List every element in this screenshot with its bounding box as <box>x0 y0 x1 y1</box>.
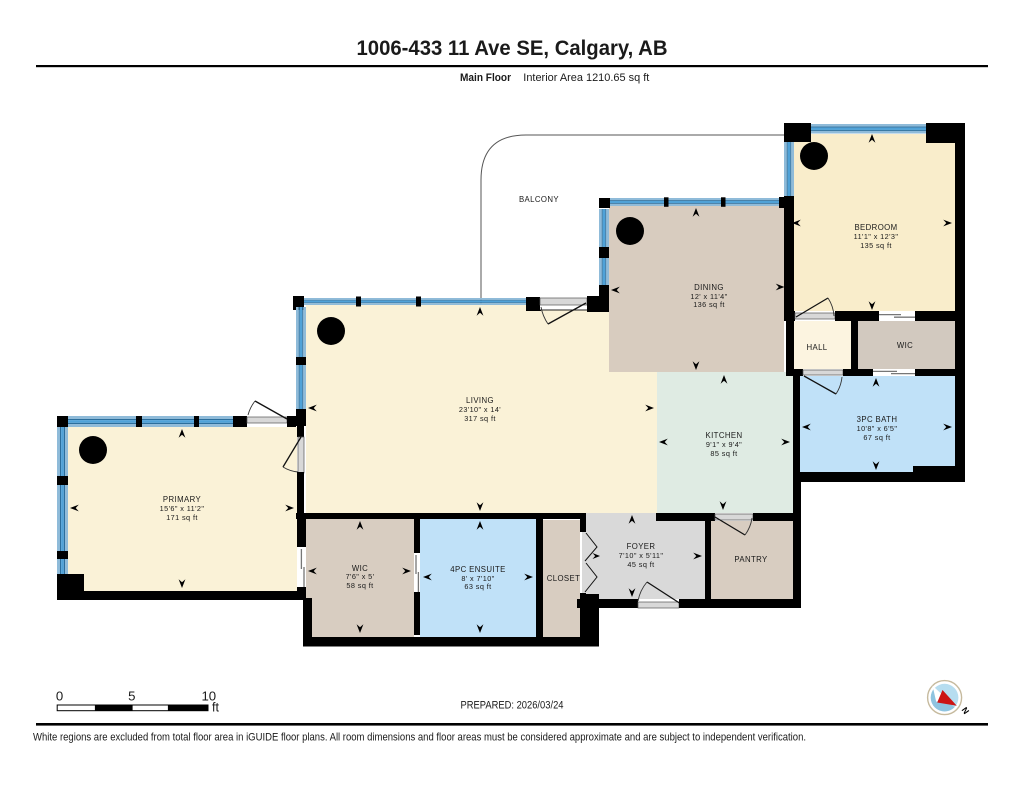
svg-text:15'6" x 11'2": 15'6" x 11'2" <box>160 504 205 513</box>
svg-text:7'10" x 5'11": 7'10" x 5'11" <box>619 551 664 560</box>
svg-text:KITCHEN: KITCHEN <box>705 431 742 440</box>
svg-text:Main Floor: Main Floor <box>460 72 511 84</box>
svg-text:0: 0 <box>56 689 63 704</box>
svg-text:136 sq ft: 136 sq ft <box>693 300 725 309</box>
svg-text:11'1" x 12'3": 11'1" x 12'3" <box>854 232 899 241</box>
svg-text:317 sq ft: 317 sq ft <box>464 414 496 423</box>
svg-text:Interior Area 1210.65 sq ft: Interior Area 1210.65 sq ft <box>523 72 649 84</box>
svg-text:ft: ft <box>212 701 219 715</box>
svg-text:BEDROOM: BEDROOM <box>854 223 897 232</box>
svg-text:PREPARED: 2026/03/24: PREPARED: 2026/03/24 <box>461 700 564 712</box>
svg-text:45 sq ft: 45 sq ft <box>627 560 654 569</box>
svg-text:White regions are excluded fro: White regions are excluded from total fl… <box>33 732 806 744</box>
svg-text:135 sq ft: 135 sq ft <box>860 241 892 250</box>
svg-text:9'1" x 9'4": 9'1" x 9'4" <box>706 440 742 449</box>
svg-text:85 sq ft: 85 sq ft <box>710 449 737 458</box>
svg-text:4PC ENSUITE: 4PC ENSUITE <box>450 565 506 574</box>
svg-text:10'8" x 6'5": 10'8" x 6'5" <box>857 424 898 433</box>
svg-text:PANTRY: PANTRY <box>734 555 768 564</box>
svg-text:FOYER: FOYER <box>627 542 656 551</box>
svg-text:171 sq ft: 171 sq ft <box>166 513 198 522</box>
svg-text:LIVING: LIVING <box>466 396 494 405</box>
svg-text:WIC: WIC <box>897 341 913 350</box>
svg-text:3PC BATH: 3PC BATH <box>857 415 898 424</box>
svg-text:BALCONY: BALCONY <box>519 195 559 204</box>
svg-text:58 sq ft: 58 sq ft <box>346 581 373 590</box>
svg-text:CLOSET: CLOSET <box>547 574 581 583</box>
svg-text:63 sq ft: 63 sq ft <box>464 582 491 591</box>
svg-text:5: 5 <box>128 689 135 704</box>
svg-text:1006-433 11 Ave SE, Calgary, A: 1006-433 11 Ave SE, Calgary, AB <box>357 36 668 60</box>
svg-text:PRIMARY: PRIMARY <box>163 495 202 504</box>
svg-text:HALL: HALL <box>806 343 827 352</box>
svg-text:7'6" x 5': 7'6" x 5' <box>346 572 375 581</box>
svg-text:67 sq ft: 67 sq ft <box>863 433 890 442</box>
svg-text:DINING: DINING <box>694 283 724 292</box>
svg-text:23'10" x 14': 23'10" x 14' <box>459 405 501 414</box>
